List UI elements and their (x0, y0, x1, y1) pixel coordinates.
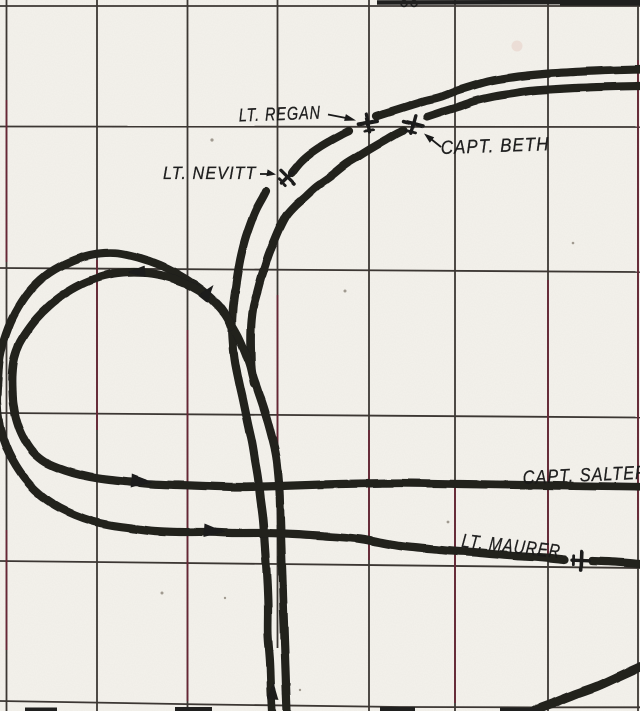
svg-text:LT. NEVITT: LT. NEVITT (163, 163, 257, 183)
svg-text:LT. REGAN: LT. REGAN (238, 102, 321, 126)
svg-text:CAPT. BETH: CAPT. BETH (440, 134, 549, 159)
